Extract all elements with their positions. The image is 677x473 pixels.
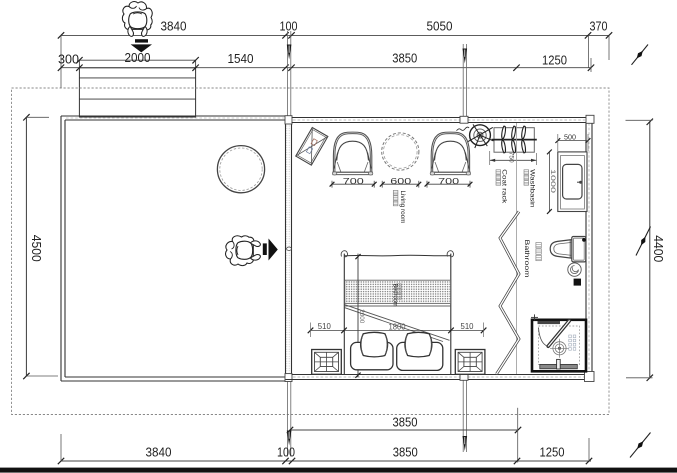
svg-text:700: 700 xyxy=(343,176,364,186)
svg-text:1000: 1000 xyxy=(549,169,556,194)
svg-text:3840: 3840 xyxy=(161,19,187,34)
svg-text:750: 750 xyxy=(508,152,515,163)
svg-text:Living room: Living room xyxy=(399,191,406,224)
svg-text:510: 510 xyxy=(318,322,332,331)
svg-text:600: 600 xyxy=(390,176,411,186)
svg-text:3850: 3850 xyxy=(393,445,418,460)
svg-text:370: 370 xyxy=(590,19,608,34)
svg-text:1250: 1250 xyxy=(540,445,565,460)
svg-text:1540: 1540 xyxy=(228,51,254,66)
svg-text:5050: 5050 xyxy=(427,19,453,34)
svg-text:3850: 3850 xyxy=(392,51,417,66)
svg-text:2000: 2000 xyxy=(125,50,151,65)
svg-text:3850: 3850 xyxy=(393,415,418,430)
svg-text:Coat rack: Coat rack xyxy=(501,169,508,204)
svg-text:4400: 4400 xyxy=(651,235,666,262)
svg-text:1250: 1250 xyxy=(542,53,567,68)
svg-text:700: 700 xyxy=(438,176,459,186)
svg-text:Washbasin: Washbasin xyxy=(528,169,535,207)
svg-text:Bathroom: Bathroom xyxy=(523,240,530,278)
svg-text:3840: 3840 xyxy=(146,444,172,459)
svg-text:100: 100 xyxy=(280,19,298,34)
svg-text:510: 510 xyxy=(461,322,475,331)
svg-text:100: 100 xyxy=(277,445,295,460)
svg-text:2000: 2000 xyxy=(358,309,365,323)
svg-text:300: 300 xyxy=(58,52,79,67)
svg-text:4500: 4500 xyxy=(29,235,44,262)
svg-text:500: 500 xyxy=(564,134,576,141)
svg-text:1800: 1800 xyxy=(389,323,407,332)
